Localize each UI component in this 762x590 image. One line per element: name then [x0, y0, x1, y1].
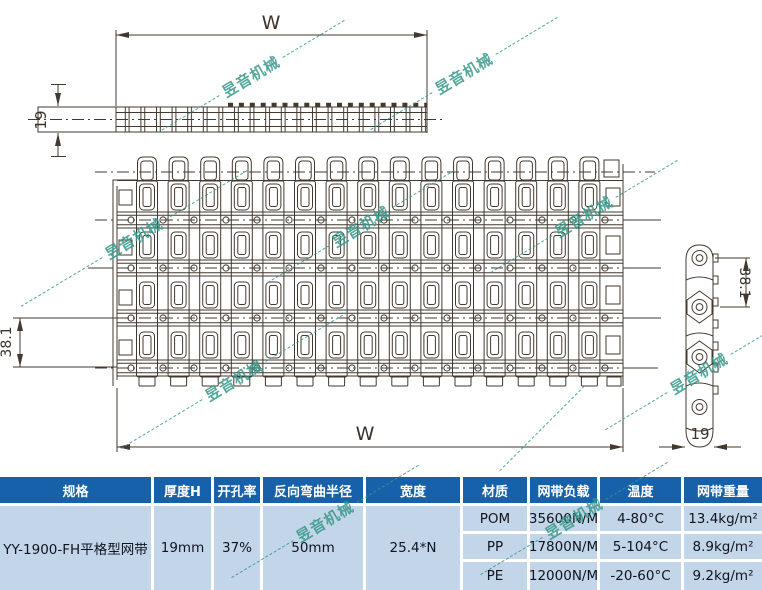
cell-width: 25.4*N: [366, 506, 460, 590]
col-header-temperature: 温度: [600, 477, 681, 503]
cell-load-pp: 17800N/M: [530, 534, 597, 559]
cell-load-pom: 35600N/M: [530, 506, 597, 531]
dim-w-bottom-label: W: [356, 423, 375, 445]
cell-open-area: 37%: [214, 506, 260, 590]
col-header-spec: 规格: [0, 477, 151, 503]
cell-temperature-pom: 4-80°C: [600, 506, 681, 531]
dim-pitch-left: 38.1: [0, 318, 117, 367]
belt-side-view: [686, 245, 718, 447]
dim-pitch-right-label: 38.1: [736, 267, 752, 298]
belt-spec-sheet: W 19: [0, 0, 762, 590]
belt-plan-view: [88, 157, 661, 386]
technical-drawing: W 19: [0, 0, 762, 462]
col-header-material: 材质: [463, 477, 527, 503]
col-header-open-area: 开孔率: [214, 477, 260, 503]
col-header-weight: 网带重量: [684, 477, 762, 503]
cell-weight-pom: 13.4kg/m²: [684, 506, 762, 531]
cell-weight-pp: 8.9kg/m²: [684, 534, 762, 559]
cell-weight-pe: 9.2kg/m²: [684, 562, 762, 590]
cell-temperature-pe: -20-60°C: [600, 562, 681, 590]
dim-pitch-left-label: 38.1: [0, 326, 15, 357]
cell-thickness: 19mm: [154, 506, 211, 590]
belt-edge-view: [28, 105, 443, 132]
col-header-width: 宽度: [366, 477, 460, 503]
dim-thickness-side-label: 19: [690, 425, 709, 443]
col-header-bend-radius: 反向弯曲半径: [263, 477, 363, 503]
cell-material-pp: PP: [463, 534, 527, 559]
dim-pitch-right: 38.1: [715, 258, 752, 307]
dim-thickness-side: 19: [659, 425, 741, 447]
dim-w-top-label: W: [262, 12, 281, 34]
spec-table: 规格 厚度H 开孔率 反向弯曲半径 宽度 材质 网带负载 温度 网带重量 YY-…: [0, 477, 762, 590]
cell-temperature-pp: 5-104°C: [600, 534, 681, 559]
dim-thickness-top: 19: [32, 85, 66, 157]
col-header-load: 网带负载: [530, 477, 597, 503]
dim-thickness-top-label: 19: [32, 110, 50, 129]
cell-material-pom: POM: [463, 506, 527, 531]
cell-bend-radius: 50mm: [263, 506, 363, 590]
cell-material-pe: PE: [463, 562, 527, 590]
col-header-thickness: 厚度H: [154, 477, 211, 503]
dim-w-bottom: W: [117, 388, 623, 452]
cell-model: YY-1900-FH平格型网带: [0, 506, 151, 590]
cell-load-pe: 12000N/M: [530, 562, 597, 590]
